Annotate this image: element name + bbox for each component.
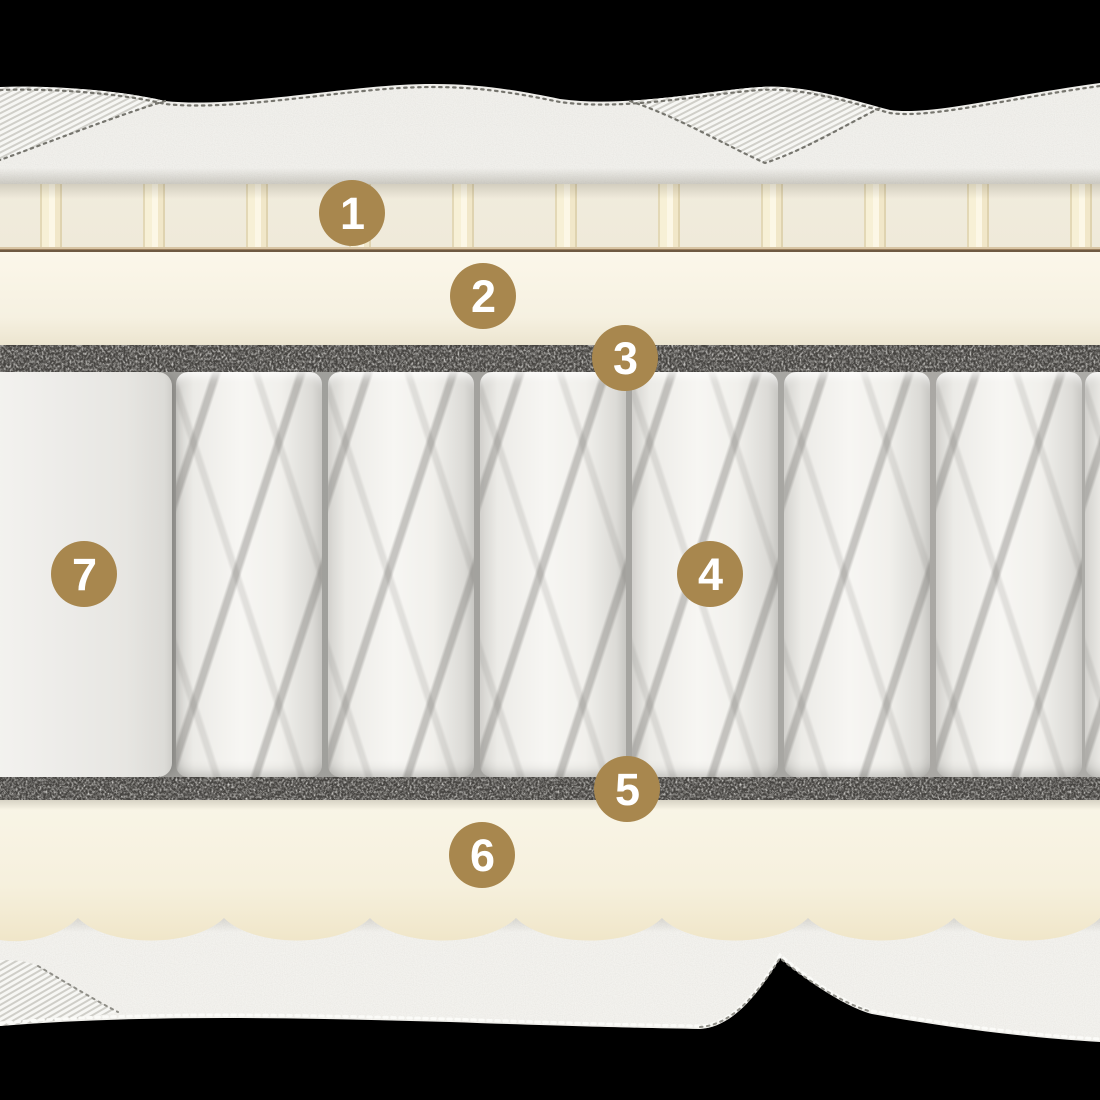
callout-5-number: 5 [615,767,639,812]
callout-7-number: 7 [72,552,96,597]
top-quilted-cover [0,0,1100,190]
mattress-cross-section-diagram: 1 2 3 4 5 6 7 [0,0,1100,1100]
callout-5: 5 [594,756,660,822]
pocket-spring [480,372,626,777]
callout-3-number: 3 [613,336,637,381]
callout-3: 3 [592,325,658,391]
callout-6-number: 6 [470,833,494,878]
callout-1: 1 [319,180,385,246]
callout-2-number: 2 [471,274,495,319]
comfort-slat-layer [0,183,1100,247]
comfort-foam-layer [0,252,1100,345]
felt-pad-lower [0,777,1100,800]
pocket-spring [1085,372,1100,777]
callout-2: 2 [450,263,516,329]
base-foam-layer [0,800,1100,950]
callout-4: 4 [677,541,743,607]
callout-4-number: 4 [698,552,722,597]
felt-pad-upper [0,345,1100,372]
callout-1-number: 1 [340,191,364,236]
callout-6: 6 [449,822,515,888]
pocket-spring [328,372,474,777]
callout-7: 7 [51,541,117,607]
pocket-spring [176,372,322,777]
pocket-spring [784,372,930,777]
pocket-spring [936,372,1082,777]
